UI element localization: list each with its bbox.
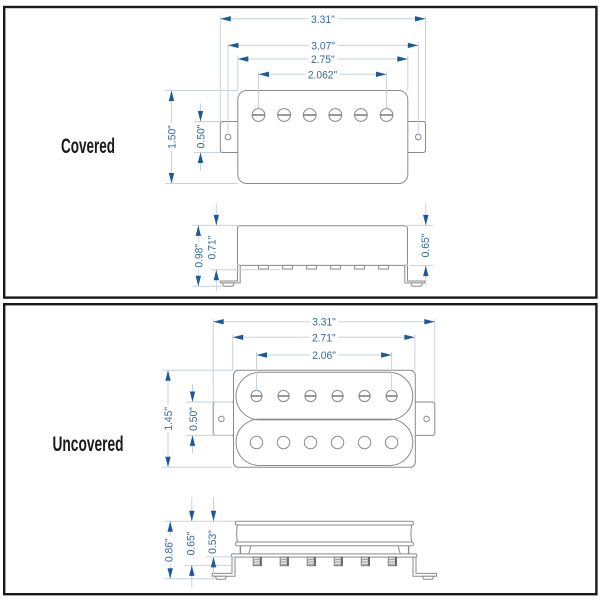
svg-text:0.53": 0.53" <box>207 530 219 554</box>
svg-text:Covered: Covered <box>61 135 115 158</box>
svg-text:3.31": 3.31" <box>312 317 336 329</box>
svg-text:0.65": 0.65" <box>186 532 198 556</box>
svg-text:0.98": 0.98" <box>193 244 205 268</box>
svg-text:2.06": 2.06" <box>312 350 336 362</box>
svg-text:0.50": 0.50" <box>188 407 200 431</box>
svg-text:1.50": 1.50" <box>167 125 179 149</box>
svg-text:0.50": 0.50" <box>196 125 208 149</box>
svg-text:2.062": 2.062" <box>308 69 337 81</box>
svg-text:3.07": 3.07" <box>311 40 335 52</box>
svg-text:3.31": 3.31" <box>311 14 335 26</box>
svg-text:2.71": 2.71" <box>312 332 336 344</box>
svg-text:0.65": 0.65" <box>420 234 432 258</box>
svg-text:0.71": 0.71" <box>207 236 219 260</box>
svg-text:Uncovered: Uncovered <box>53 433 124 456</box>
svg-text:2.75": 2.75" <box>311 54 335 66</box>
svg-text:0.86": 0.86" <box>164 538 176 562</box>
svg-text:1.45": 1.45" <box>163 407 175 431</box>
